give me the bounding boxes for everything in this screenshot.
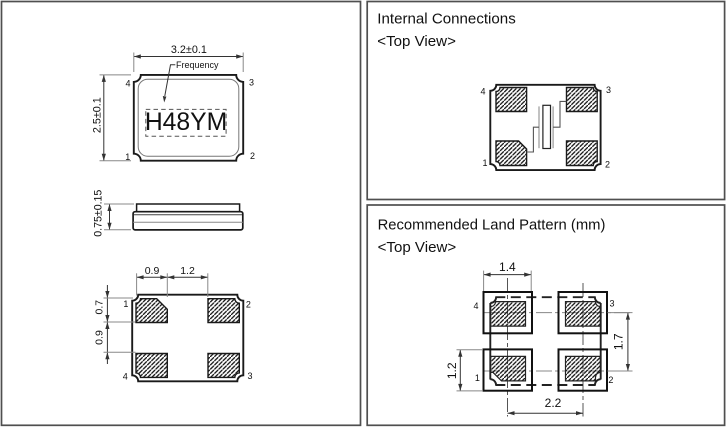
svg-text:H48YM: H48YM <box>145 109 227 136</box>
svg-text:1.4: 1.4 <box>499 260 516 274</box>
svg-text:Frequency: Frequency <box>176 60 219 70</box>
svg-text:2: 2 <box>246 300 251 310</box>
svg-text:1.7: 1.7 <box>612 333 626 350</box>
svg-text:3: 3 <box>609 298 614 308</box>
svg-text:1: 1 <box>123 299 128 309</box>
svg-text:0.9: 0.9 <box>93 330 105 345</box>
svg-text:2.5±0.1: 2.5±0.1 <box>91 97 103 133</box>
svg-text:4: 4 <box>123 372 128 382</box>
svg-text:Internal Connections: Internal Connections <box>377 11 515 28</box>
svg-text:3: 3 <box>249 77 254 87</box>
svg-text:0.75±0.15: 0.75±0.15 <box>93 190 105 237</box>
svg-text:<Top View>: <Top View> <box>378 239 457 256</box>
svg-text:1.2: 1.2 <box>180 265 195 277</box>
svg-text:4: 4 <box>473 301 478 311</box>
svg-text:1: 1 <box>482 158 487 168</box>
svg-text:<Top View>: <Top View> <box>377 33 456 50</box>
svg-text:2: 2 <box>250 151 255 161</box>
svg-text:2.2: 2.2 <box>545 396 562 410</box>
svg-text:Recommended Land Pattern (mm): Recommended Land Pattern (mm) <box>378 218 606 234</box>
svg-text:2: 2 <box>608 375 613 385</box>
svg-text:2: 2 <box>605 159 610 169</box>
svg-text:3.2±0.1: 3.2±0.1 <box>171 44 207 56</box>
svg-text:1.2: 1.2 <box>445 362 459 379</box>
svg-text:0.7: 0.7 <box>93 300 105 315</box>
svg-text:4: 4 <box>125 78 130 88</box>
svg-text:3: 3 <box>606 85 611 95</box>
svg-text:1: 1 <box>475 373 480 383</box>
svg-text:4: 4 <box>480 86 485 96</box>
svg-text:3: 3 <box>247 371 252 381</box>
svg-text:0.9: 0.9 <box>145 265 160 277</box>
